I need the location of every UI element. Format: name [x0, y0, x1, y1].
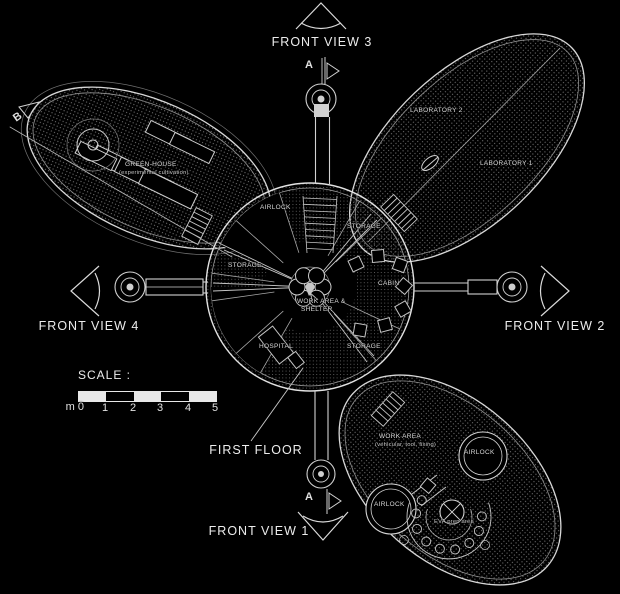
- front-view-3-label: FRONT VIEW 3: [272, 36, 373, 49]
- storage-bottom-label: STORAGE: [347, 344, 381, 351]
- scale-tick-5: 5: [212, 402, 218, 414]
- hospital-label: HOSPITAL: [259, 344, 293, 351]
- view-cone-icon-left: [71, 266, 100, 316]
- docking-port-icon-top: [306, 58, 336, 184]
- front-view-4-label: FRONT VIEW 4: [39, 320, 140, 333]
- first-floor-label: FIRST FLOOR: [209, 444, 302, 457]
- section-a-top-label: A: [305, 60, 313, 71]
- airlock-left-label: AIRLOCK: [374, 502, 405, 509]
- greenhouse-subtitle: (experimental cultivation): [119, 171, 189, 177]
- scale-segment: [189, 392, 216, 401]
- hub-airlock-label: AIRLOCK: [260, 205, 291, 212]
- scale-segment: [161, 392, 188, 401]
- work-area-subtitle: (vehicular, tool, fixing): [375, 443, 436, 449]
- scale-segment: [134, 392, 161, 401]
- laboratory-2-label: LABORATORY 2: [410, 108, 463, 115]
- docking-port-icon-bottom: [307, 391, 335, 488]
- scale-segment: [79, 392, 106, 401]
- scale-tick-2: 2: [130, 402, 136, 414]
- scale-segment: [106, 392, 133, 401]
- work-area-title: WORK AREA: [379, 434, 421, 441]
- docking-port-icon-left: [115, 272, 208, 302]
- docking-port-icon-right: [414, 272, 527, 302]
- storage-top-label: STORAGE: [347, 224, 381, 231]
- front-view-2-label: FRONT VIEW 2: [505, 320, 606, 333]
- scale-unit-zero: m 0: [52, 402, 84, 413]
- section-flag-icon-a-bottom: [327, 489, 341, 514]
- cabin-label: CABIN: [378, 281, 399, 288]
- scale-tick-3: 3: [157, 402, 163, 414]
- scale-title: SCALE :: [78, 369, 131, 381]
- scale-bar: [78, 391, 217, 402]
- laboratory-1-label: LABORATORY 1: [480, 161, 533, 168]
- greenhouse-title: GREEN-HOUSE: [125, 162, 177, 169]
- front-view-1-label: FRONT VIEW 1: [209, 525, 310, 538]
- scale-tick-4: 4: [185, 402, 191, 414]
- view-cone-icon-right: [541, 266, 570, 316]
- storage-left-label: STORAGE: [228, 263, 262, 270]
- blueprint-canvas: FRONT VIEW 3 FRONT VIEW 4 FRONT VIEW 2 F…: [0, 0, 620, 594]
- airlock-right-label: AIRLOCK: [464, 450, 495, 457]
- floorplan-drawing: [0, 0, 620, 594]
- section-a-bottom-label: A: [305, 492, 313, 503]
- scale-tick-1: 1: [102, 402, 108, 414]
- eva-prep-label: EVA prep area: [434, 520, 474, 526]
- view-cone-icon-top: [296, 3, 346, 29]
- section-flag-icon-a-top: [325, 57, 339, 84]
- work-area-shelter-line1: WORK AREA &: [297, 299, 345, 306]
- work-area-shelter-line2: SHELTER: [301, 307, 333, 314]
